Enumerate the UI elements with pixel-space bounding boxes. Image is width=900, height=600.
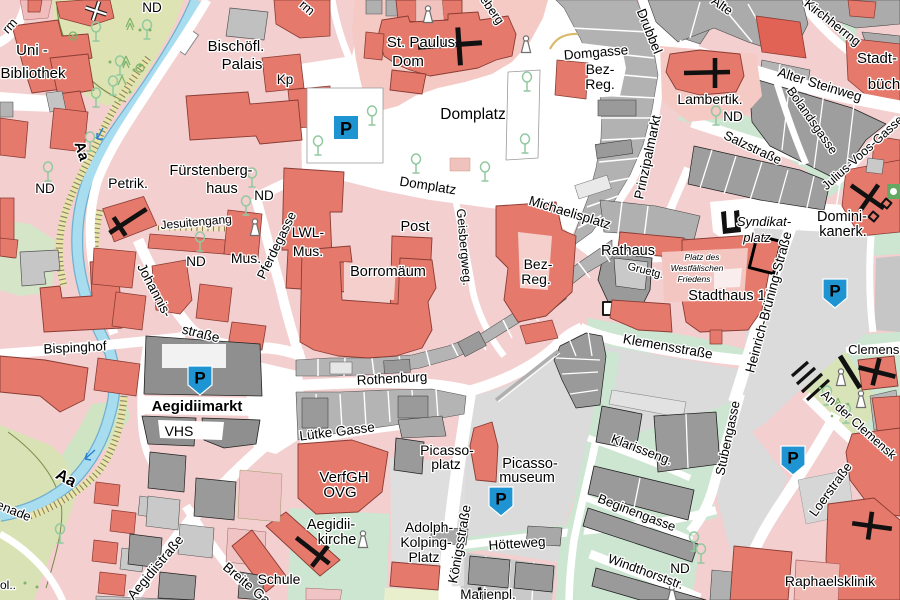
- svg-text:Friedens: Friedens: [677, 274, 711, 284]
- svg-text:VHS: VHS: [165, 423, 194, 439]
- svg-text:Clemensk: Clemensk: [848, 342, 900, 357]
- svg-text:Adolph-: Adolph-: [405, 519, 454, 535]
- svg-text:Bischöfl.: Bischöfl.: [208, 38, 265, 55]
- svg-text:platz: platz: [742, 230, 771, 245]
- svg-text:Bibliothek: Bibliothek: [0, 65, 66, 82]
- svg-text:ND: ND: [35, 181, 55, 196]
- svg-text:Kolping-: Kolping-: [400, 534, 452, 550]
- svg-text:Platz: Platz: [408, 549, 439, 565]
- svg-text:Post: Post: [400, 219, 429, 235]
- svg-text:Raphaelsklinik: Raphaelsklinik: [785, 573, 876, 589]
- svg-text:kanerk.: kanerk.: [819, 224, 867, 240]
- svg-text:haus: haus: [206, 181, 237, 197]
- svg-text:büch: büch: [868, 76, 900, 93]
- svg-text:kirche: kirche: [318, 532, 357, 548]
- svg-text:Palais: Palais: [222, 56, 263, 73]
- svg-text:Mus.: Mus.: [231, 250, 261, 266]
- svg-text:Reg.: Reg.: [585, 76, 615, 92]
- svg-text:ND: ND: [723, 109, 743, 124]
- svg-text:Stadt-: Stadt-: [857, 50, 897, 67]
- svg-text:Domplatz: Domplatz: [440, 106, 505, 123]
- svg-text:Marienpl.: Marienpl.: [460, 587, 516, 600]
- svg-text:ND: ND: [254, 188, 274, 203]
- svg-text:Platz des: Platz des: [685, 252, 721, 262]
- svg-text:platz: platz: [431, 456, 461, 472]
- svg-text:Westfälischen: Westfälischen: [671, 263, 724, 273]
- svg-text:Fürstenberg-: Fürstenberg-: [169, 163, 252, 179]
- svg-text:Aegidii-: Aegidii-: [307, 517, 356, 533]
- svg-text:Syndikat-: Syndikat-: [737, 214, 792, 229]
- svg-text:Rathaus: Rathaus: [601, 243, 655, 259]
- svg-text:Uni -: Uni -: [16, 42, 48, 59]
- svg-text:Schule: Schule: [258, 571, 301, 587]
- svg-text:Stadthaus 1: Stadthaus 1: [688, 288, 765, 304]
- svg-text:Bez-: Bez-: [586, 61, 615, 77]
- svg-text:OVG: OVG: [323, 484, 356, 501]
- svg-text:ol..: ol..: [0, 578, 16, 592]
- svg-text:Dom: Dom: [392, 53, 424, 70]
- svg-text:Petrik.: Petrik.: [108, 175, 148, 191]
- svg-text:ND: ND: [142, 0, 162, 15]
- svg-text:Lambertik.: Lambertik.: [677, 91, 742, 107]
- svg-text:museum: museum: [499, 470, 555, 486]
- svg-text:Kp: Kp: [277, 72, 294, 87]
- svg-text:Reg.: Reg.: [521, 271, 551, 287]
- svg-text:LWL-: LWL-: [292, 224, 325, 240]
- svg-text:Mus.: Mus.: [293, 243, 323, 259]
- svg-text:Bez-: Bez-: [524, 256, 553, 272]
- svg-text:ND: ND: [186, 254, 206, 269]
- svg-text:Borromäum: Borromäum: [350, 264, 426, 280]
- svg-text:St. Paulus: St. Paulus: [387, 34, 455, 51]
- svg-text:Domini-: Domini-: [817, 209, 867, 225]
- svg-text:Aegidiimarkt: Aegidiimarkt: [152, 398, 243, 415]
